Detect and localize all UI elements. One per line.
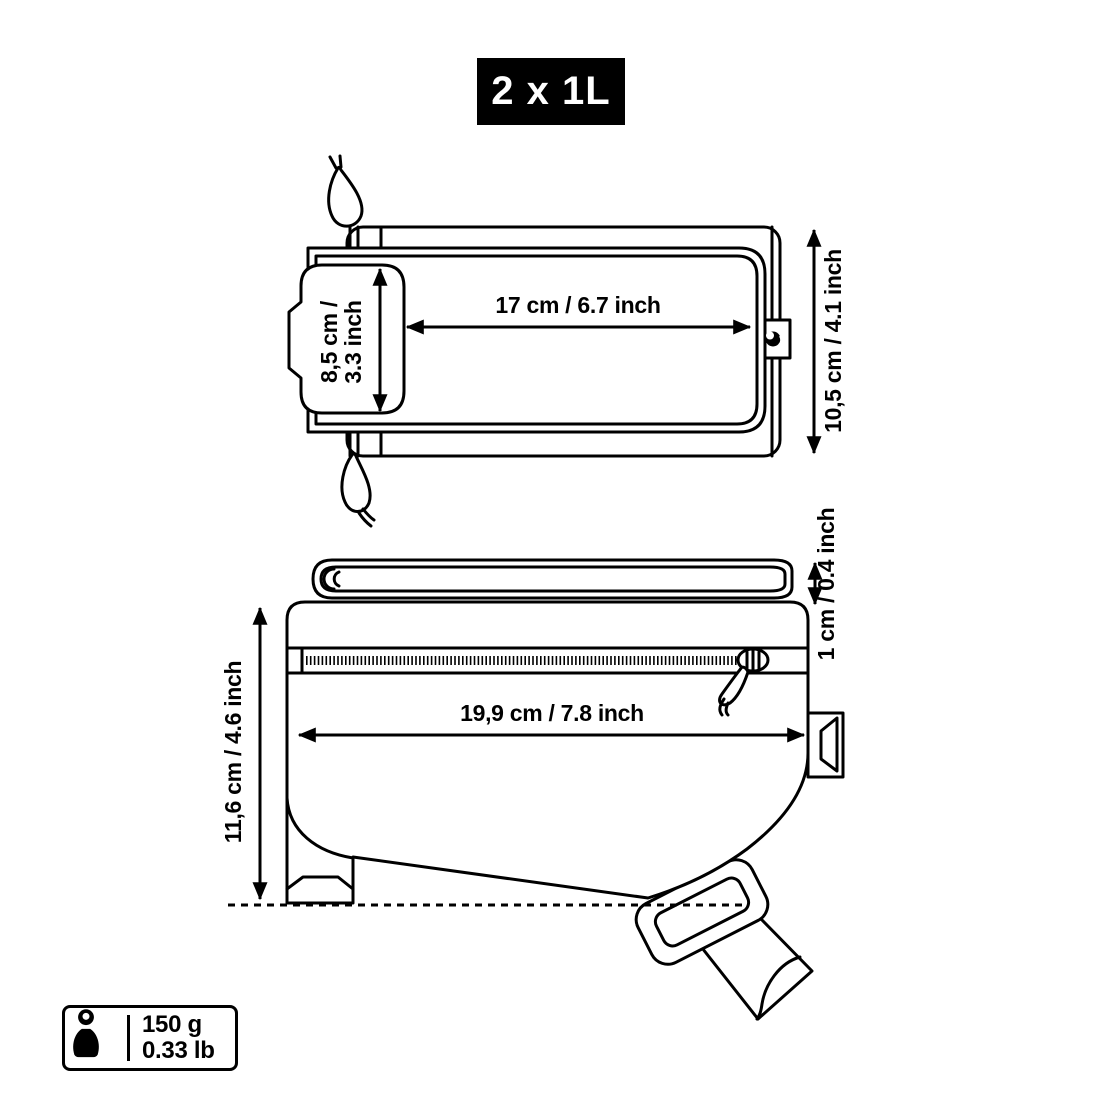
dimension-label-flap-height-line2: 3.3 inch: [340, 300, 366, 383]
dimension-label-top-width: 17 cm / 6.7 inch: [495, 292, 660, 318]
zipper-pull-cord-bottom: [342, 454, 374, 526]
product-dimensions-diagram: 2 x 1L: [0, 0, 1100, 1100]
dimension-label-side-length: 19,9 cm / 7.8 inch: [460, 700, 644, 726]
kettlebell-weight-icon: [65, 1008, 107, 1058]
weight-imperial: 0.33 lb: [142, 1038, 215, 1064]
weight-panel: 150 g 0.33 lb: [62, 1005, 238, 1071]
dimension-label-top-height: 10,5 cm / 4.1 inch: [820, 249, 846, 433]
top-view-drawing: 17 cm / 6.7 inch 8,5 cm / 3.3 inch 10,5 …: [289, 156, 846, 526]
side-buckle: [808, 713, 843, 777]
diagram-canvas: 17 cm / 6.7 inch 8,5 cm / 3.3 inch 10,5 …: [0, 0, 1100, 1100]
dimension-label-lid-thickness: 1 cm / 0.4 inch: [813, 508, 839, 661]
dimension-label-side-height: 11,6 cm / 4.6 inch: [220, 661, 246, 844]
weight-metric: 150 g: [142, 1012, 215, 1038]
weight-panel-divider: [127, 1015, 130, 1061]
side-view-drawing: 19,9 cm / 7.8 inch 11,6 cm / 4.6 inch 1 …: [220, 508, 843, 1019]
zipper-pull-cord-top: [329, 156, 362, 226]
dimension-label-flap-height-line1: 8,5 cm /: [316, 300, 342, 383]
